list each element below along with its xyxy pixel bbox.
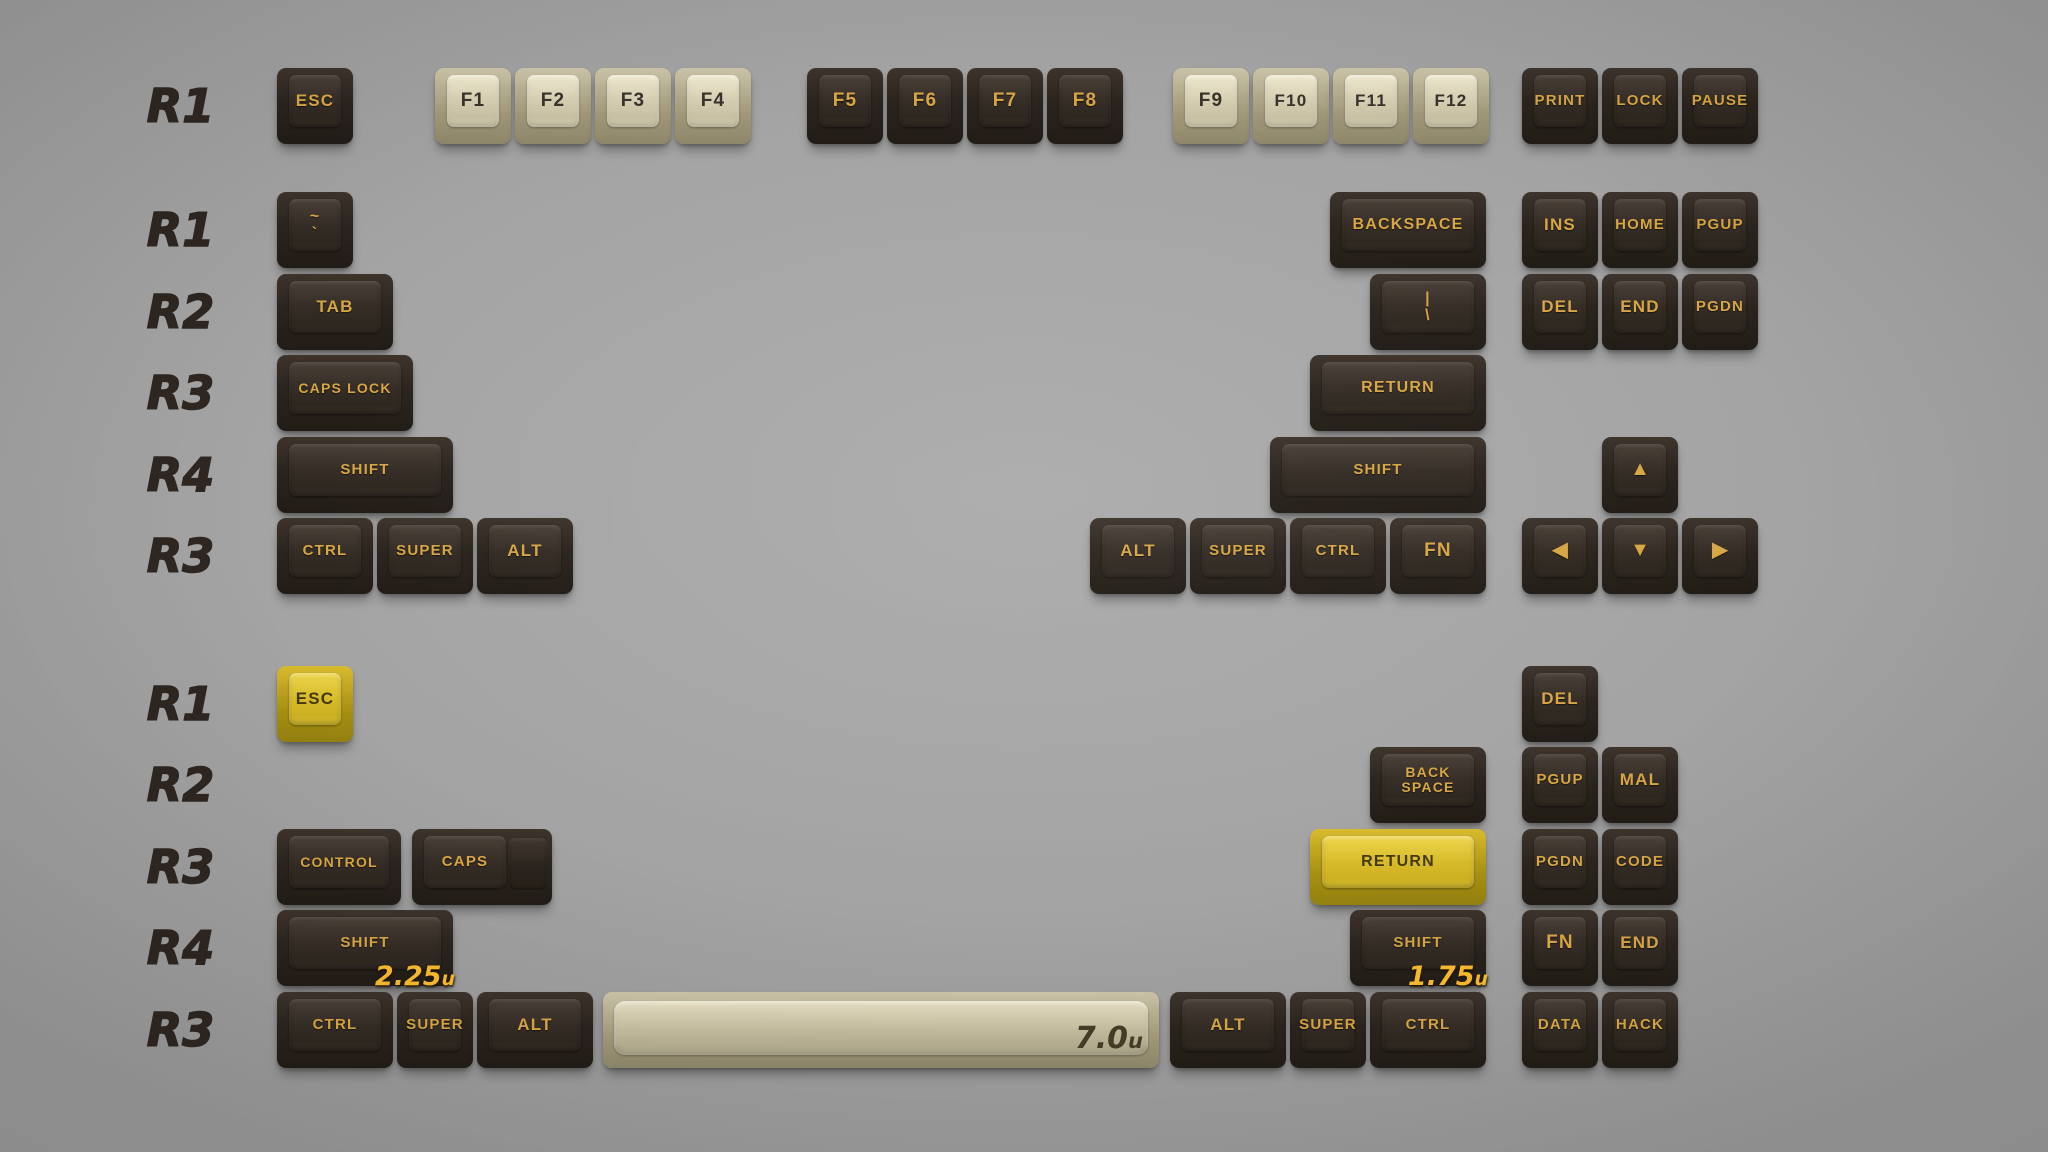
keycap-top: CONTROL <box>289 836 389 888</box>
keycap-top: SUPER <box>409 999 461 1051</box>
key-end: END <box>1602 910 1678 986</box>
keycap-top: ▼ <box>1614 525 1666 577</box>
key-return-yellow: RETURN <box>1310 829 1486 905</box>
keycap-top: F5 <box>819 75 871 127</box>
keycap-top: SUPER <box>1302 999 1354 1051</box>
key-backslash: |\ <box>1370 274 1486 350</box>
key-caps-stepped: CAPS <box>412 829 552 905</box>
key-legend: LOCK <box>1614 75 1666 127</box>
key-f11: F11 <box>1333 68 1409 144</box>
keycap-top: DATA <box>1534 999 1586 1051</box>
keycap-top: F12 <box>1425 75 1477 127</box>
key-legend: SHIFT <box>1282 444 1474 496</box>
keycap-top: F3 <box>607 75 659 127</box>
key-legend: F8 <box>1059 75 1111 127</box>
key-f5: F5 <box>807 68 883 144</box>
keycap-top: |\ <box>1382 281 1474 333</box>
keycap-top: PAUSE <box>1694 75 1746 127</box>
key-ctrl: CTRL <box>1290 518 1386 594</box>
keycap-top: CTRL <box>1382 999 1474 1051</box>
key-f8: F8 <box>1047 68 1123 144</box>
key-control: CONTROL <box>277 829 401 905</box>
key-del: DEL <box>1522 274 1598 350</box>
key-arrow-left: ◀ <box>1522 518 1598 594</box>
key-legend: DATA <box>1534 999 1586 1051</box>
key-legend: PGDN <box>1694 281 1746 333</box>
keycap-top: END <box>1614 917 1666 969</box>
key-legend: CONTROL <box>289 836 389 888</box>
key-legend: F6 <box>899 75 951 127</box>
key-legend: F10 <box>1265 75 1317 127</box>
key-pgdn: PGDN <box>1522 829 1598 905</box>
keycap-top: HOME <box>1614 199 1666 251</box>
row-label-r1-1: R1 <box>118 192 243 268</box>
key-legend: SHIFT <box>289 444 441 496</box>
key-legend: F7 <box>979 75 1031 127</box>
key-legend: MAL <box>1614 754 1666 806</box>
keycap-top: CTRL <box>1302 525 1374 577</box>
keycap-top: LOCK <box>1614 75 1666 127</box>
arrow-right-icon: ▶ <box>1694 525 1746 577</box>
key-alt: ALT <box>1170 992 1286 1068</box>
keycap-top: ▶ <box>1694 525 1746 577</box>
row-label-r3-10: R3 <box>118 992 243 1068</box>
keycap-top: ESC <box>289 673 341 725</box>
key-print: PRINT <box>1522 68 1598 144</box>
size-annotation-2-25u: 2.25u <box>375 961 455 992</box>
key-legend: ~` <box>289 199 341 251</box>
keycap-top: DEL <box>1534 281 1586 333</box>
row-label-r3-5: R3 <box>118 518 243 594</box>
key-alt: ALT <box>1090 518 1186 594</box>
key-legend: F12 <box>1425 75 1477 127</box>
key-spacebar: 7.0u <box>603 992 1159 1068</box>
key-alt: ALT <box>477 992 593 1068</box>
key-legend: F3 <box>607 75 659 127</box>
key-legend: RETURN <box>1322 836 1474 888</box>
key-legend: SUPER <box>409 999 461 1051</box>
key-legend: ALT <box>1102 525 1174 577</box>
keycap-top: HACK <box>1614 999 1666 1051</box>
keycap-top: F2 <box>527 75 579 127</box>
keycap-top: CTRL <box>289 999 381 1051</box>
keycap-top: CAPS <box>424 836 506 888</box>
key-data: DATA <box>1522 992 1598 1068</box>
key-f2: F2 <box>515 68 591 144</box>
key-legend: CAPS LOCK <box>289 362 401 414</box>
key-f7: F7 <box>967 68 1043 144</box>
key-lock: LOCK <box>1602 68 1678 144</box>
key-f4: F4 <box>675 68 751 144</box>
keycap-top: MAL <box>1614 754 1666 806</box>
keycap-top: TAB <box>289 281 381 333</box>
key-super: SUPER <box>377 518 473 594</box>
key-tab: TAB <box>277 274 393 350</box>
key-legend: F1 <box>447 75 499 127</box>
key-legend: TAB <box>289 281 381 333</box>
keycap-top: DEL <box>1534 673 1586 725</box>
row-label-r2-2: R2 <box>118 274 243 350</box>
key-legend: BACKSPACE <box>1382 754 1474 806</box>
key-end: END <box>1602 274 1678 350</box>
keycap-top: F9 <box>1185 75 1237 127</box>
key-legend: ESC <box>289 673 341 725</box>
keycap-set-render: R1ESCF1F2F3F4F5F6F7F8F9F10F11F12PRINTLOC… <box>0 0 2048 1152</box>
key-legend: CTRL <box>289 525 361 577</box>
key-legend: SUPER <box>1202 525 1274 577</box>
keycap-top: PGDN <box>1534 836 1586 888</box>
key-pgup: PGUP <box>1682 192 1758 268</box>
key-legend: CTRL <box>1382 999 1474 1051</box>
key-legend: HACK <box>1614 999 1666 1051</box>
keycap-top: FN <box>1402 525 1474 577</box>
keycap-top: ALT <box>489 525 561 577</box>
key-return: RETURN <box>1310 355 1486 431</box>
keycap-top: F7 <box>979 75 1031 127</box>
key-super: SUPER <box>1190 518 1286 594</box>
key-legend: CODE <box>1614 836 1666 888</box>
key-super: SUPER <box>397 992 473 1068</box>
keycap-top: SUPER <box>389 525 461 577</box>
key-legend: END <box>1614 917 1666 969</box>
key-pgup: PGUP <box>1522 747 1598 823</box>
key-ctrl: CTRL <box>277 992 393 1068</box>
keycap-top: SHIFT <box>1282 444 1474 496</box>
key-legend: DEL <box>1534 281 1586 333</box>
row-label-r4-9: R4 <box>118 910 243 986</box>
key-legend: F5 <box>819 75 871 127</box>
keycap-top: F1 <box>447 75 499 127</box>
key-alt: ALT <box>477 518 573 594</box>
key-back-space: BACKSPACE <box>1370 747 1486 823</box>
key-code: CODE <box>1602 829 1678 905</box>
key-legend: HOME <box>1614 199 1666 251</box>
keycap-top: RETURN <box>1322 836 1474 888</box>
key-fn: FN <box>1522 910 1598 986</box>
key-shift: SHIFT <box>277 437 453 513</box>
key-ctrl: CTRL <box>1370 992 1486 1068</box>
key-arrow-right: ▶ <box>1682 518 1758 594</box>
key-legend: CTRL <box>1302 525 1374 577</box>
key-f9: F9 <box>1173 68 1249 144</box>
key-legend: PRINT <box>1534 75 1586 127</box>
key-legend: PGUP <box>1694 199 1746 251</box>
keycap-top: F6 <box>899 75 951 127</box>
key-backspace: BACKSPACE <box>1330 192 1486 268</box>
key-legend: ALT <box>489 525 561 577</box>
key-del: DEL <box>1522 666 1598 742</box>
keycap-top <box>614 1001 1148 1055</box>
keycap-top: ▲ <box>1614 444 1666 496</box>
key-shift: SHIFT <box>1270 437 1486 513</box>
key-legend: ESC <box>289 75 341 127</box>
key-legend: F4 <box>687 75 739 127</box>
key-legend: ALT <box>1182 999 1274 1051</box>
keycap-top: F8 <box>1059 75 1111 127</box>
key-legend: PGDN <box>1534 836 1586 888</box>
keycap-top: SUPER <box>1202 525 1274 577</box>
keycap-top: SHIFT <box>289 444 441 496</box>
row-label-r1-6: R1 <box>118 666 243 742</box>
key-esc: ESC <box>277 68 353 144</box>
row-label-r1-0: R1 <box>118 68 243 144</box>
key-f6: F6 <box>887 68 963 144</box>
key-arrow-down: ▼ <box>1602 518 1678 594</box>
keycap-top: F10 <box>1265 75 1317 127</box>
row-label-r4-4: R4 <box>118 437 243 513</box>
key-pgdn: PGDN <box>1682 274 1758 350</box>
key-ctrl: CTRL <box>277 518 373 594</box>
key-shift-1-75u: SHIFT1.75u <box>1350 910 1486 986</box>
key-f12: F12 <box>1413 68 1489 144</box>
key-legend: F2 <box>527 75 579 127</box>
keycap-top: ~` <box>289 199 341 251</box>
keycap-top: CAPS LOCK <box>289 362 401 414</box>
key-legend: RETURN <box>1322 362 1474 414</box>
key-legend: F11 <box>1345 75 1397 127</box>
key-legend: DEL <box>1534 673 1586 725</box>
key-tilde: ~` <box>277 192 353 268</box>
keycap-top: PGUP <box>1534 754 1586 806</box>
size-annotation-7-0u: 7.0u <box>1075 1021 1143 1056</box>
key-esc-yellow: ESC <box>277 666 353 742</box>
key-ins: INS <box>1522 192 1598 268</box>
key-legend: PAUSE <box>1694 75 1746 127</box>
keycap-step <box>509 838 547 890</box>
keycap-top: ALT <box>489 999 581 1051</box>
arrow-left-icon: ◀ <box>1534 525 1586 577</box>
key-f10: F10 <box>1253 68 1329 144</box>
arrow-up-icon: ▲ <box>1614 444 1666 496</box>
keycap-top: ALT <box>1102 525 1174 577</box>
key-mal: MAL <box>1602 747 1678 823</box>
key-legend: SUPER <box>1302 999 1354 1051</box>
row-label-r3-3: R3 <box>118 355 243 431</box>
keycap-top: FN <box>1534 917 1586 969</box>
key-super: SUPER <box>1290 992 1366 1068</box>
key-hack: HACK <box>1602 992 1678 1068</box>
row-label-r2-7: R2 <box>118 747 243 823</box>
key-legend: F9 <box>1185 75 1237 127</box>
keycap-top: CODE <box>1614 836 1666 888</box>
key-home: HOME <box>1602 192 1678 268</box>
keycap-top: ◀ <box>1534 525 1586 577</box>
keycap-top: END <box>1614 281 1666 333</box>
key-f1: F1 <box>435 68 511 144</box>
key-f3: F3 <box>595 68 671 144</box>
key-legend: FN <box>1402 525 1474 577</box>
key-legend: CTRL <box>289 999 381 1051</box>
keycap-top: PGDN <box>1694 281 1746 333</box>
row-label-r3-8: R3 <box>118 829 243 905</box>
keycap-top: F4 <box>687 75 739 127</box>
keycap-top: RETURN <box>1322 362 1474 414</box>
key-legend: SUPER <box>389 525 461 577</box>
key-legend: PGUP <box>1534 754 1586 806</box>
keycap-top: ALT <box>1182 999 1274 1051</box>
key-legend: INS <box>1534 199 1586 251</box>
key-arrow-up: ▲ <box>1602 437 1678 513</box>
size-annotation-1-75u: 1.75u <box>1408 961 1488 992</box>
key-legend: ALT <box>489 999 581 1051</box>
key-legend: FN <box>1534 917 1586 969</box>
keycap-top: INS <box>1534 199 1586 251</box>
keycap-top: PRINT <box>1534 75 1586 127</box>
key-legend: |\ <box>1382 281 1474 333</box>
keycap-top: BACKSPACE <box>1342 199 1474 251</box>
key-pause: PAUSE <box>1682 68 1758 144</box>
keycap-top: ESC <box>289 75 341 127</box>
key-legend: BACKSPACE <box>1342 199 1474 251</box>
key-fn: FN <box>1390 518 1486 594</box>
key-legend: END <box>1614 281 1666 333</box>
keycap-top: CTRL <box>289 525 361 577</box>
arrow-down-icon: ▼ <box>1614 525 1666 577</box>
keycap-top: F11 <box>1345 75 1397 127</box>
keycap-top: BACKSPACE <box>1382 754 1474 806</box>
key-caps-lock: CAPS LOCK <box>277 355 413 431</box>
key-legend: CAPS <box>424 836 506 888</box>
keycap-top: PGUP <box>1694 199 1746 251</box>
key-shift-2-25u: SHIFT2.25u <box>277 910 453 986</box>
